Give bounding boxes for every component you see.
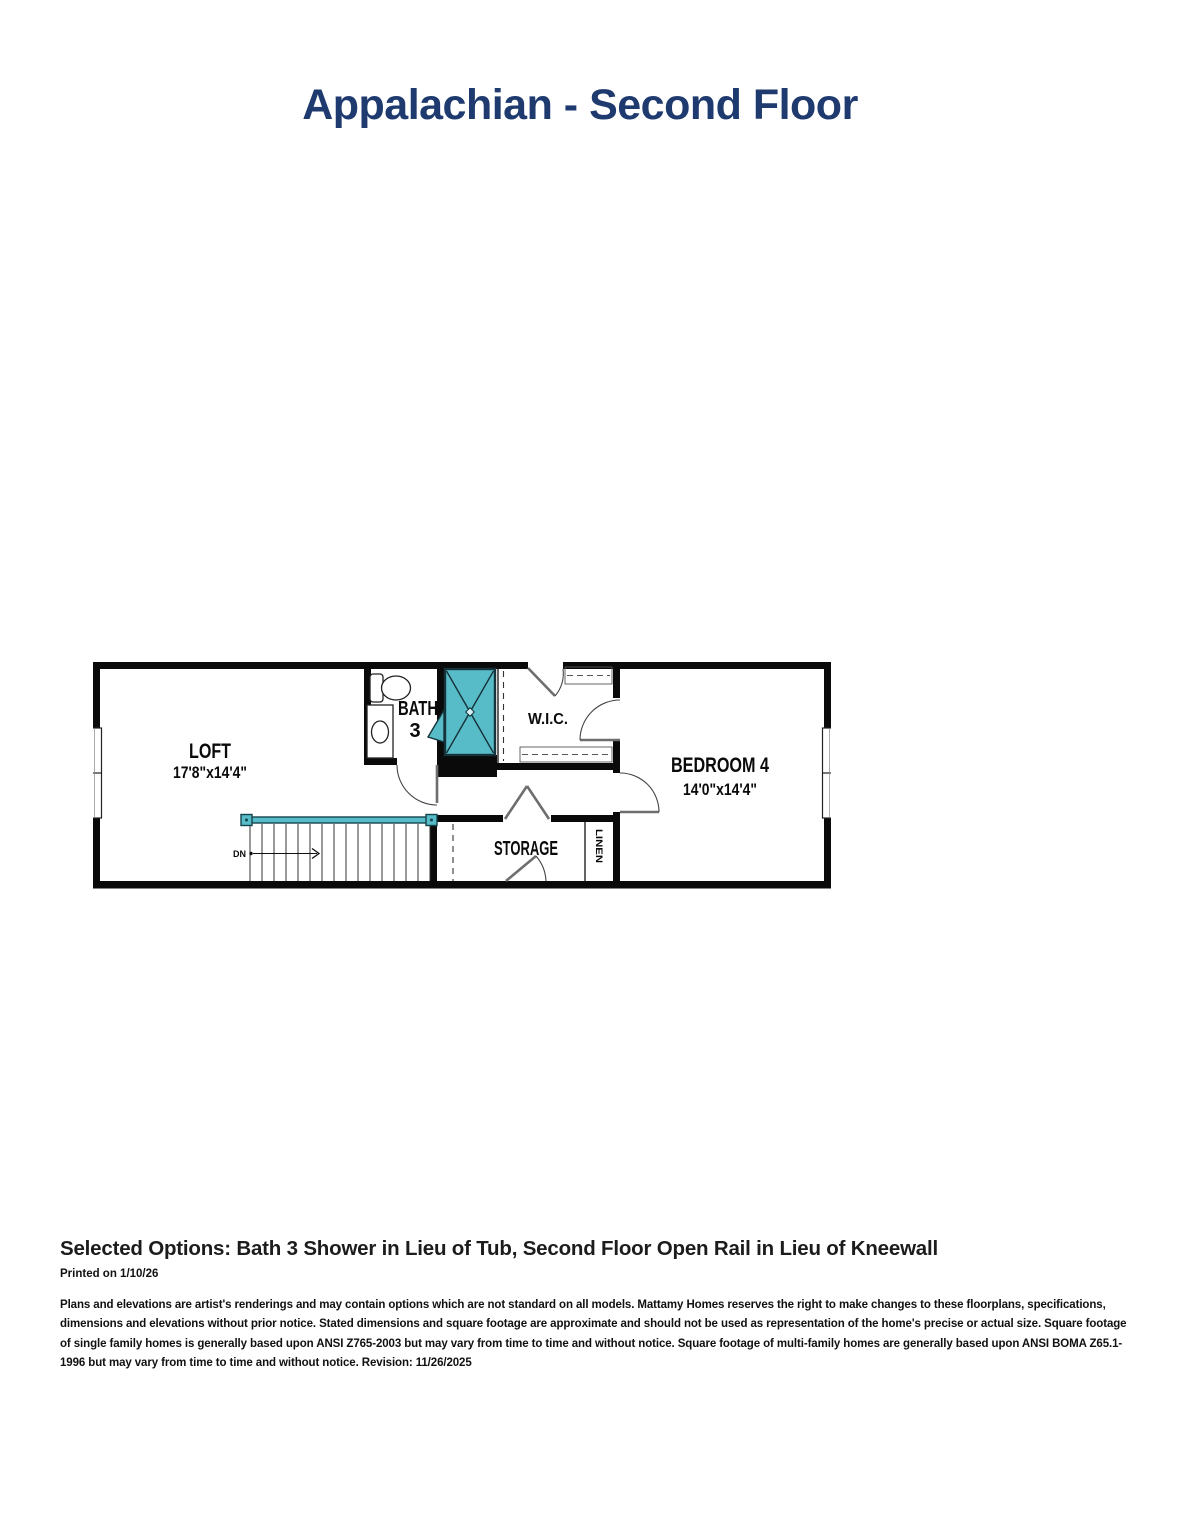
bedroom4-dimensions: 14'0"x14'4" (683, 781, 757, 799)
staircase (250, 824, 430, 881)
bath-number: 3 (409, 720, 420, 742)
storage-top-door (505, 786, 549, 819)
stairs-direction (249, 849, 319, 859)
storage-label: STORAGE (494, 838, 558, 860)
linen-label: LINEN (593, 829, 604, 863)
page-title: Appalachian - Second Floor (0, 81, 1160, 130)
selected-options-text: Selected Options: Bath 3 Shower in Lieu … (60, 1237, 1140, 1261)
bath-door (397, 765, 437, 805)
disclaimer-text: Plans and elevations are artist's render… (60, 1296, 1138, 1373)
vanity-fixture (367, 705, 393, 758)
open-rail (241, 815, 437, 826)
floor-plan: LOFT 17'8"x14'4" BEDROOM 4 14'0"x14'4" B… (93, 662, 831, 889)
wic-label: W.I.C. (528, 711, 568, 728)
bedroom4-label: BEDROOM 4 (671, 754, 769, 777)
loft-label: LOFT (189, 740, 231, 763)
window-right (823, 728, 832, 818)
loft-dimensions: 17'8"x14'4" (173, 764, 247, 782)
dn-label: DN (233, 849, 246, 859)
wic-door (580, 700, 620, 740)
printed-on-text: Printed on 1/10/26 (60, 1268, 158, 1280)
window-left (93, 728, 102, 818)
wic-entry-door (528, 668, 563, 696)
bedroom4-door (620, 773, 659, 812)
bath-label: BATH (398, 698, 438, 720)
